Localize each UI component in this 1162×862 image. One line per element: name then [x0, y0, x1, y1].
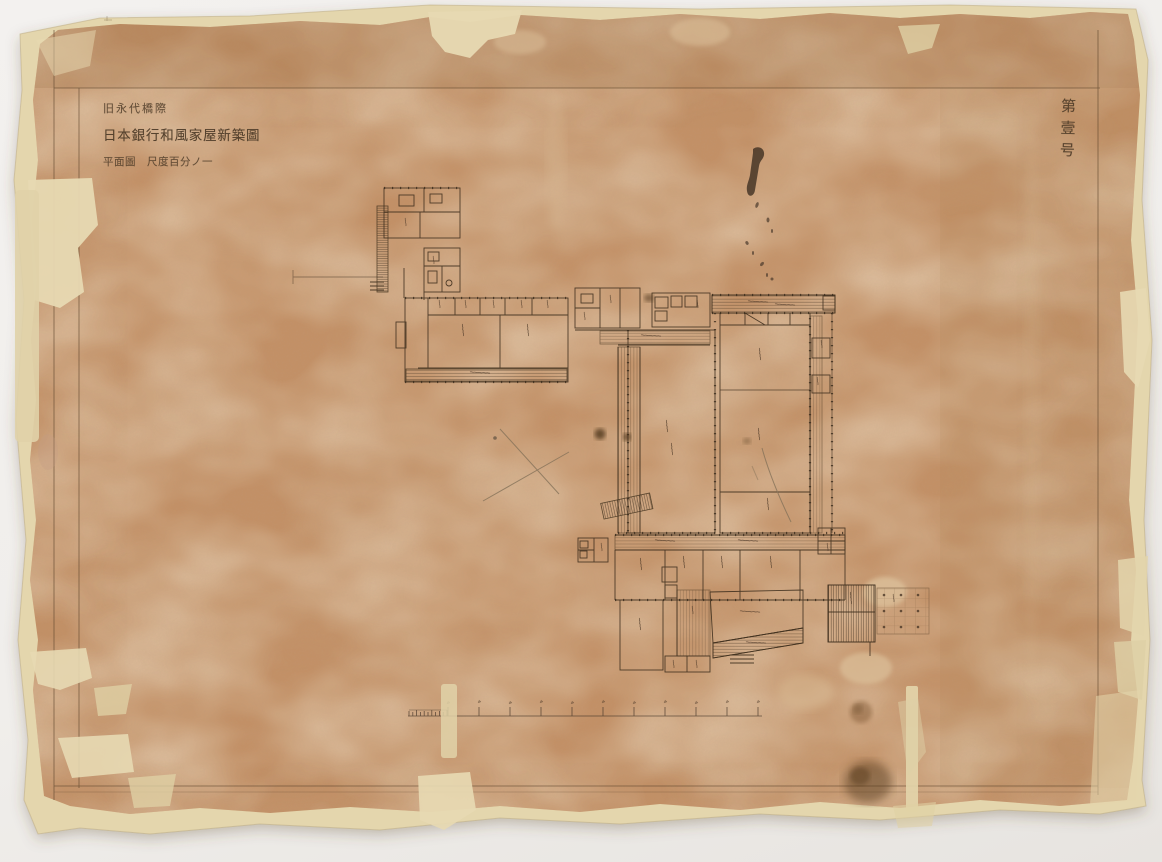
drawing-canvas: [0, 0, 1162, 862]
paper-texture: [0, 0, 1162, 862]
photographed-architectural-drawing: 旧永代橋際 日本銀行和風家屋新築圖 平面圖 尺度百分ノ一 第壹号: [0, 0, 1162, 862]
